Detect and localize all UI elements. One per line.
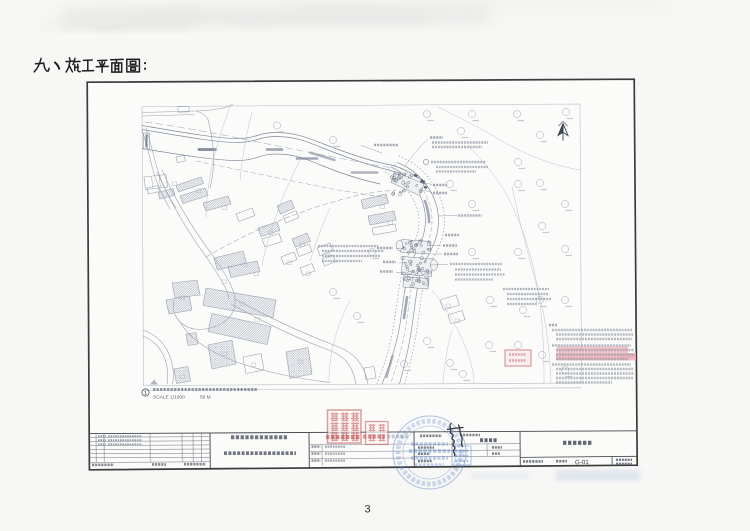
svg-text:1: 1: [144, 391, 147, 397]
svg-text:SCALE 1/1000: SCALE 1/1000: [153, 395, 185, 401]
svg-text:G-01: G-01: [575, 459, 589, 466]
svg-text:50 M: 50 M: [200, 395, 211, 401]
svg-text:3: 3: [365, 503, 371, 515]
